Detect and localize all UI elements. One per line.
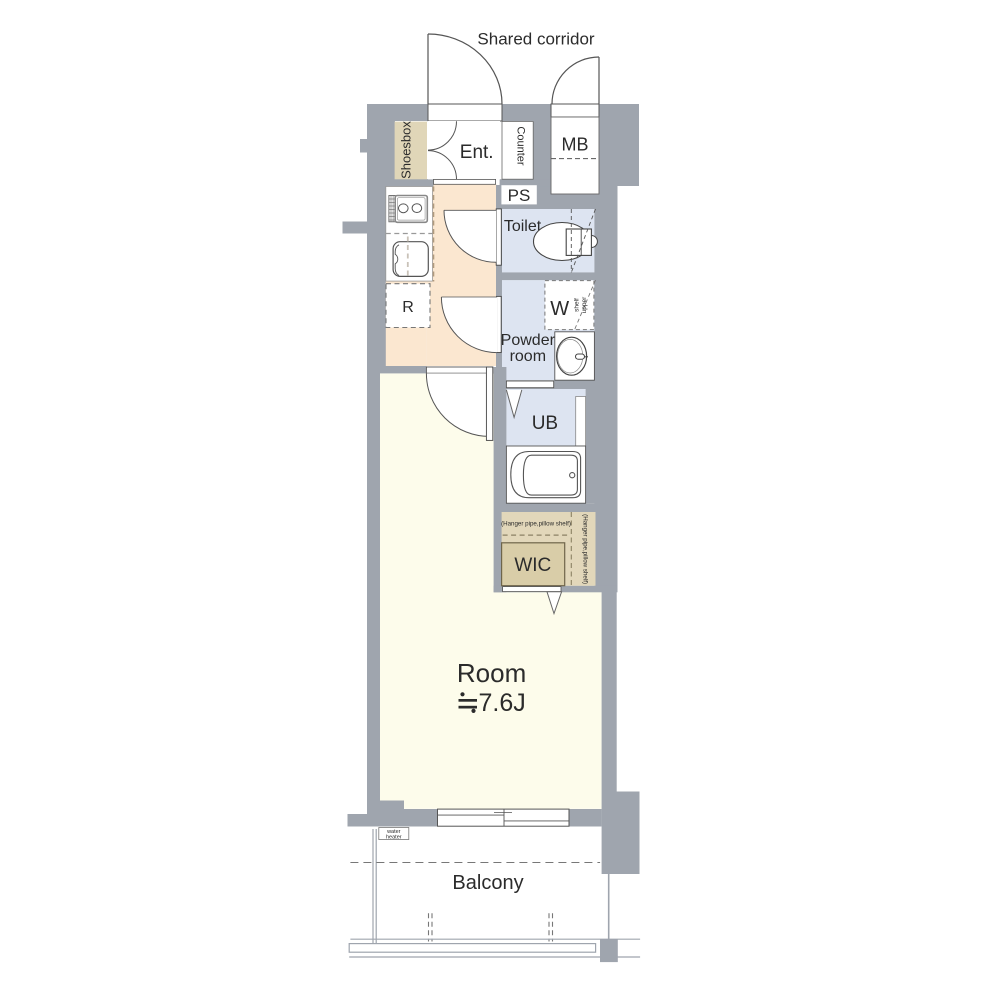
svg-text:R: R bbox=[402, 299, 414, 316]
svg-text:Shoesbox: Shoesbox bbox=[399, 121, 414, 179]
svg-text:(Hanger pipe,pillow shelf): (Hanger pipe,pillow shelf) bbox=[501, 521, 571, 528]
svg-text:heater: heater bbox=[386, 835, 402, 841]
svg-text:Counter: Counter bbox=[515, 126, 527, 165]
svg-text:Powder: Powder bbox=[501, 332, 556, 349]
svg-text:PS: PS bbox=[508, 186, 531, 205]
svg-text:MB: MB bbox=[562, 135, 589, 155]
svg-text:W: W bbox=[550, 298, 569, 320]
svg-text:shelf: shelf bbox=[574, 298, 581, 312]
svg-text:UB: UB bbox=[532, 413, 558, 434]
svg-text:upper: upper bbox=[581, 296, 588, 313]
svg-text:(Hanger pipe,pillow shelf): (Hanger pipe,pillow shelf) bbox=[581, 514, 588, 584]
svg-text:Shared corridor: Shared corridor bbox=[477, 30, 595, 49]
svg-text:WIC: WIC bbox=[514, 555, 551, 576]
svg-text:Ent.: Ent. bbox=[460, 142, 494, 163]
svg-text:7.6J: 7.6J bbox=[479, 689, 526, 717]
svg-text:room: room bbox=[510, 348, 546, 365]
svg-text:Balcony: Balcony bbox=[452, 872, 523, 894]
svg-text:Toilet: Toilet bbox=[504, 218, 542, 235]
svg-text:Room: Room bbox=[457, 658, 526, 688]
